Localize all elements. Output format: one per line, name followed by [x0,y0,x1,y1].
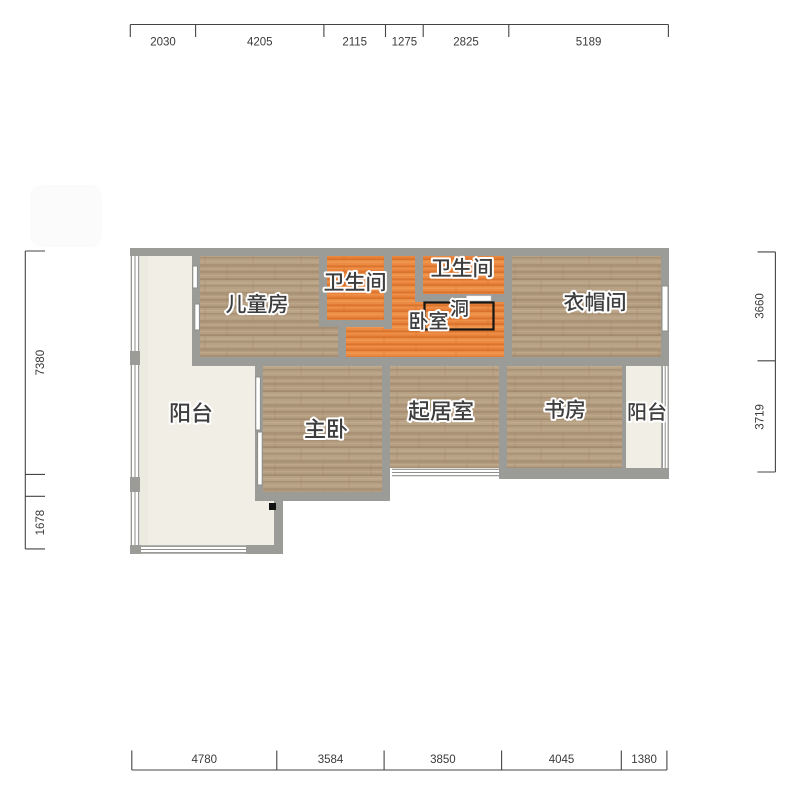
svg-text:4045: 4045 [549,754,575,766]
svg-text:2115: 2115 [342,37,367,49]
svg-text:1678: 1678 [35,510,47,536]
svg-text:3660: 3660 [755,293,767,319]
svg-text:7380: 7380 [35,350,47,376]
svg-text:2030: 2030 [150,37,176,49]
svg-text:4205: 4205 [247,37,273,49]
svg-text:4780: 4780 [192,754,218,766]
svg-text:2825: 2825 [453,37,479,49]
svg-text:5189: 5189 [576,37,602,49]
svg-text:3584: 3584 [318,754,344,766]
svg-text:1275: 1275 [392,37,418,49]
svg-text:1380: 1380 [631,754,657,766]
svg-text:3719: 3719 [755,404,767,430]
svg-text:3850: 3850 [430,754,456,766]
